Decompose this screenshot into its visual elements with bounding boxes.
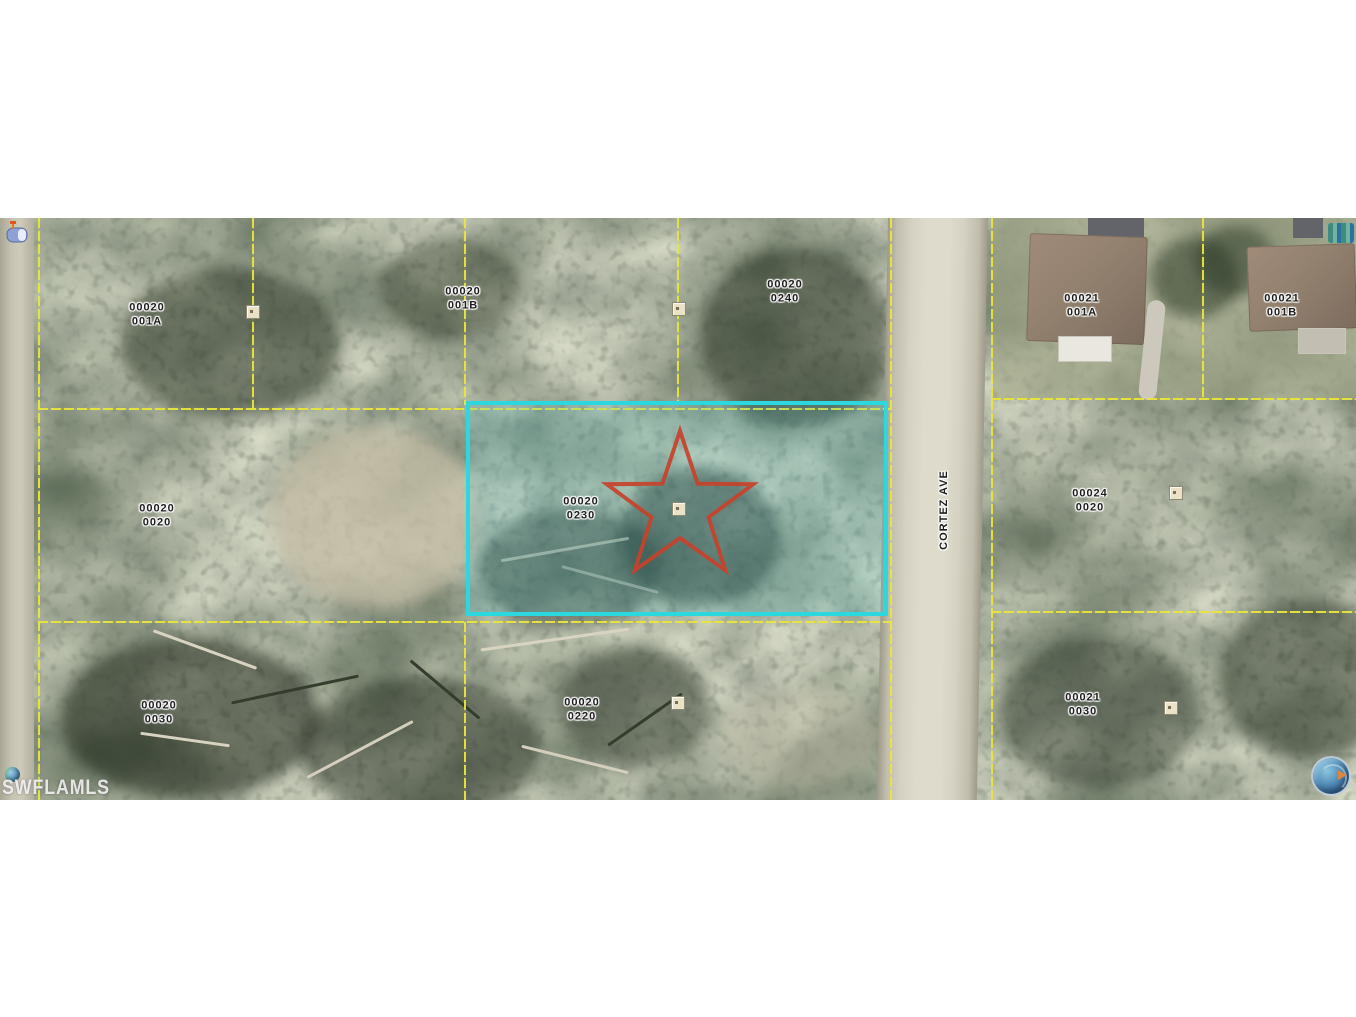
parcel-label: 000240020 xyxy=(1072,487,1108,515)
parcel-boundary-line xyxy=(991,218,993,800)
compass-globe-icon xyxy=(1311,756,1351,796)
survey-marker xyxy=(672,502,686,516)
concrete-pad xyxy=(1058,336,1112,362)
survey-marker xyxy=(1169,486,1183,500)
parcel-boundary-line xyxy=(38,621,891,623)
mls-photo-frame: 00020001A00020001B00020024000021001A0002… xyxy=(0,0,1356,1017)
parcel-label: 000200230 xyxy=(563,495,599,523)
pool-enclosure xyxy=(1328,223,1354,243)
sand-patch xyxy=(270,428,480,608)
parcel-label: 000200020 xyxy=(139,502,175,530)
parcel-label: 000200220 xyxy=(564,696,600,724)
parcel-boundary-line xyxy=(464,622,466,800)
survey-marker xyxy=(672,302,686,316)
parcel-label: 000210030 xyxy=(1065,691,1101,719)
survey-marker xyxy=(246,305,260,319)
parcel-label: 000200240 xyxy=(767,278,803,306)
parcel-label: 00020001B xyxy=(445,285,481,313)
aerial-map: 00020001A00020001B00020024000021001A0002… xyxy=(0,218,1356,800)
cortez-ave-road xyxy=(877,218,988,800)
survey-marker xyxy=(1164,701,1178,715)
watermark: SWFLAMLS xyxy=(2,776,110,800)
mailbox-icon xyxy=(4,220,32,246)
tree-cluster xyxy=(120,268,340,418)
parcel-label: 00021001B xyxy=(1264,292,1300,320)
parcel-boundary-line xyxy=(890,218,892,800)
survey-marker xyxy=(671,696,685,710)
concrete-pad xyxy=(1298,328,1346,354)
house-roof xyxy=(1293,218,1323,238)
parcel-boundary-line xyxy=(991,611,1356,613)
parcel-boundary-line xyxy=(1202,218,1204,398)
house-roof xyxy=(1026,233,1148,345)
house-roof xyxy=(1247,243,1356,332)
parcel-boundary-line xyxy=(991,398,1356,400)
parcel-label: 000200030 xyxy=(141,699,177,727)
left-dirt-road xyxy=(0,218,34,800)
tree-cluster xyxy=(60,638,320,798)
parcel-label: 00021001A xyxy=(1064,292,1100,320)
parcel-boundary-line xyxy=(38,218,40,800)
street-label: CORTEZ AVE xyxy=(938,470,950,550)
sand-patch xyxy=(720,688,880,788)
parcel-label: 00020001A xyxy=(129,301,165,329)
